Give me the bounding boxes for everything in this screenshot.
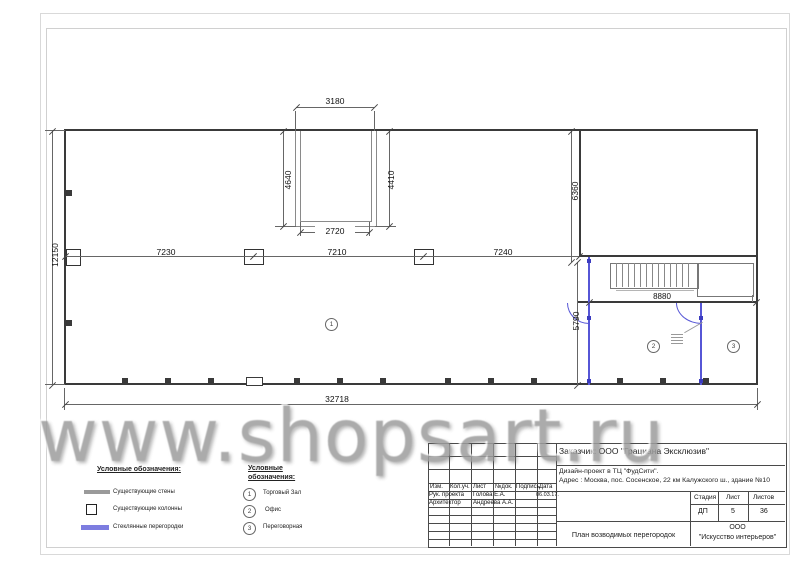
tb-col-izm: Изм. — [430, 484, 443, 490]
wall-corridor — [577, 301, 756, 303]
tb-row2-role: Архитектор — [429, 500, 461, 506]
tb-sheets-label: Листов — [753, 494, 774, 501]
tb-col-data: Дата — [539, 484, 552, 490]
legend-room-label-3: Переговорная — [263, 524, 302, 530]
tb-sheet-label: Лист — [726, 494, 740, 501]
dim-right-lower: 5790 — [571, 299, 581, 343]
tb-sheet-value: 5 — [731, 508, 735, 515]
column — [414, 249, 434, 265]
staircase — [610, 263, 699, 289]
legend-room-marker-1: 1 — [243, 488, 256, 501]
legend-rooms-title-1: Условные — [248, 465, 283, 472]
dim-opening-right: 4410 — [386, 160, 396, 200]
tb-row1-date: 06.03.17. — [536, 492, 559, 498]
tb-project: Дизайн-проект в ТЦ "ФудСити". — [559, 468, 658, 475]
tb-row2-name: Андреева А.А. — [473, 500, 513, 506]
wall-stairs-top — [579, 255, 756, 257]
tb-stage-label: Стадия — [694, 494, 716, 501]
tb-col-list: Лист — [473, 484, 486, 490]
tb-row1-name: Голова Е.А. — [473, 492, 505, 498]
tb-address: Адрес : Москва, пос. Сосенское, 22 км Ка… — [559, 477, 770, 484]
room-marker-2: 2 — [647, 340, 660, 353]
glass-partition-swatch — [81, 525, 109, 530]
dim-right-upper: 6360 — [570, 169, 580, 213]
tb-customer: Заказчик: ООО "Грациана Эксклюзив" — [559, 446, 709, 456]
legend-label-existing-columns: Существующие колонны — [113, 506, 182, 512]
column — [244, 249, 264, 265]
dim-bay-3: 7240 — [483, 247, 523, 257]
legend-room-label-2: Офис — [265, 507, 281, 513]
tb-row1-role: Рук. проекта — [429, 492, 464, 498]
legend-label-glass-partitions: Стеклянные перегородки — [113, 524, 183, 530]
tb-col-podpis: Подпись — [516, 484, 540, 490]
room-marker-1: 1 — [325, 318, 338, 331]
legend-room-marker-3: 3 — [243, 522, 256, 535]
dim-bay-1: 7230 — [146, 247, 186, 257]
stair-landing — [697, 263, 754, 297]
tb-company-1: ООО — [690, 524, 785, 531]
legend-room-label-1: Торговый Зал — [263, 490, 301, 496]
tb-drawing-title: План возводимых перегородок — [557, 530, 690, 539]
dim-opening-bottom: 2720 — [315, 226, 355, 236]
tb-sheets-value: 36 — [760, 508, 768, 515]
existing-column-swatch — [86, 504, 97, 515]
dim-right-width: 8880 — [642, 292, 682, 301]
legend-room-marker-2: 2 — [243, 505, 256, 518]
legend-symbols-title: Условные обозначения: — [97, 466, 181, 473]
tb-stage-value: ДП — [698, 508, 708, 515]
drawing-sheet: 3180 4640 4410 2720 12150 32718 — [0, 0, 794, 561]
room-marker-3: 3 — [727, 340, 740, 353]
dim-opening-top: 3180 — [315, 96, 355, 106]
tb-company-2: "Искусство интерьеров" — [690, 534, 785, 541]
legend-label-existing-walls: Существующие стены — [113, 489, 175, 495]
tb-col-koluch: Кол.уч. — [450, 484, 470, 490]
dim-bay-2: 7210 — [317, 247, 357, 257]
tb-col-ndok: №док. — [495, 484, 513, 490]
stair-run-dim-line — [616, 290, 694, 291]
top-opening-inner — [300, 131, 372, 222]
dim-opening-left: 4640 — [283, 160, 293, 200]
dim-overall-width: 32718 — [307, 394, 367, 404]
legend-rooms-title-2: обозначения: — [248, 474, 295, 481]
dim-overall-height: 12150 — [50, 229, 60, 281]
existing-wall-swatch — [84, 490, 110, 494]
column — [66, 249, 81, 266]
